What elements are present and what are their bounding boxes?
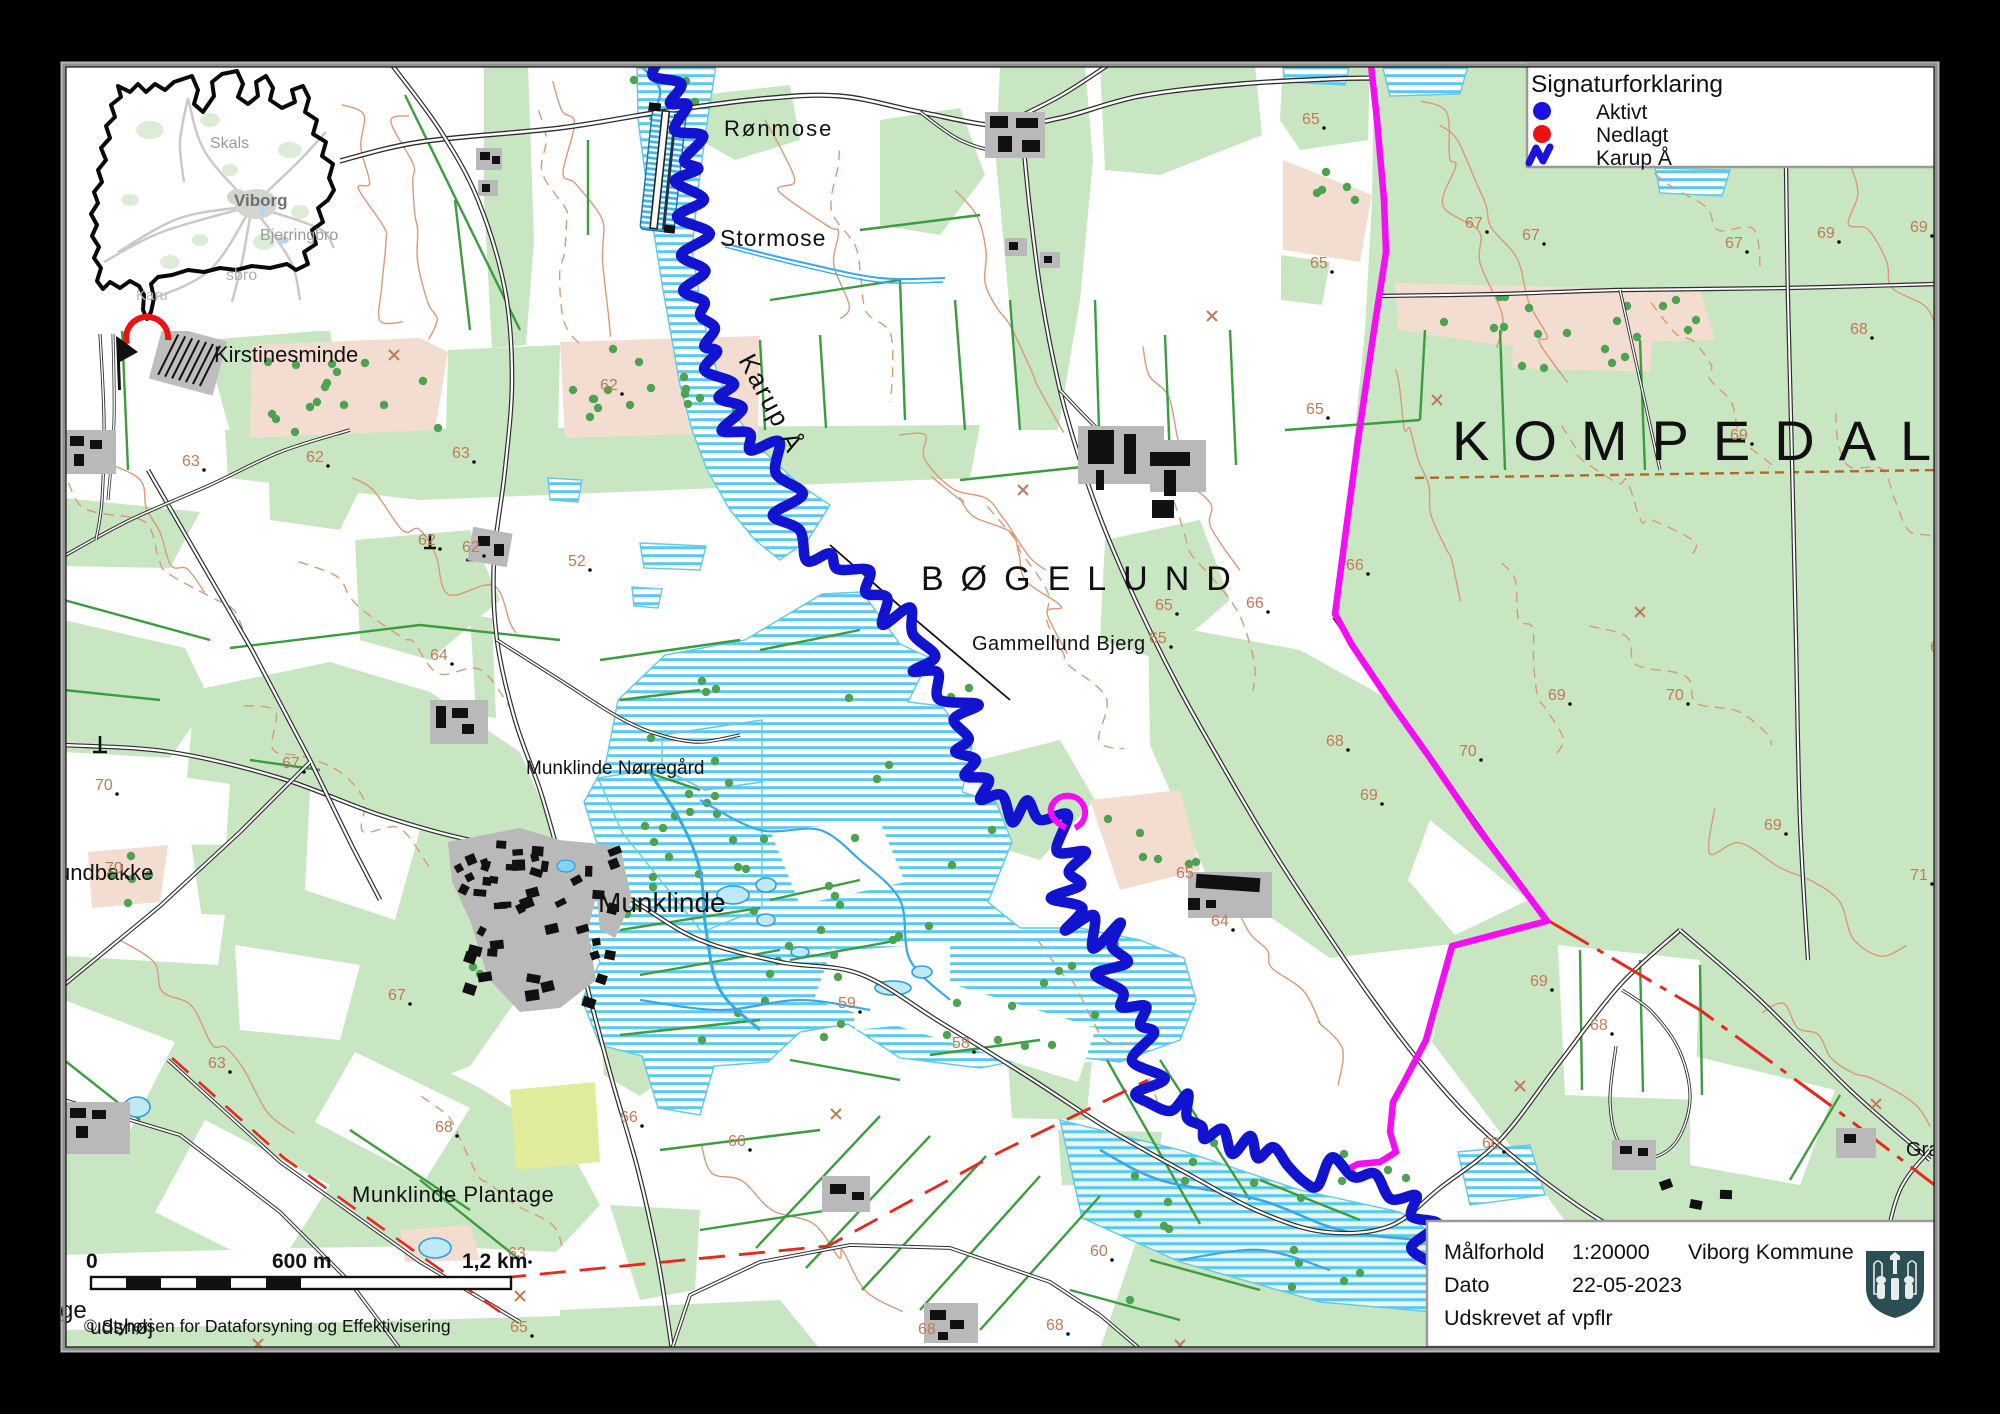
svg-text:Skals: Skals xyxy=(210,135,249,152)
svg-text:60: 60 xyxy=(1090,1243,1108,1260)
svg-text:68: 68 xyxy=(1046,1317,1064,1334)
svg-text:69: 69 xyxy=(1730,427,1748,444)
svg-text:1,2 km: 1,2 km xyxy=(462,1250,527,1273)
svg-text:vpflr: vpflr xyxy=(1572,1306,1613,1330)
svg-text:Stormose: Stormose xyxy=(720,225,826,251)
svg-text:Rønmose: Rønmose xyxy=(724,116,833,141)
svg-text:sbro: sbro xyxy=(226,267,257,284)
svg-text:66: 66 xyxy=(728,1133,746,1150)
svg-text:63: 63 xyxy=(208,1055,226,1072)
svg-text:Munklinde Plantage: Munklinde Plantage xyxy=(352,1182,554,1207)
svg-text:Kirstinesminde: Kirstinesminde xyxy=(214,342,358,367)
svg-text:68: 68 xyxy=(1850,321,1868,338)
svg-text:65: 65 xyxy=(1176,865,1194,882)
svg-text:63: 63 xyxy=(182,453,200,470)
svg-text:Karup Å: Karup Å xyxy=(1596,147,1672,170)
svg-text:66: 66 xyxy=(1346,557,1364,574)
svg-text:© Styrelsen for Dataforsyning: © Styrelsen for Dataforsyning og Effekti… xyxy=(84,1316,451,1336)
svg-text:70: 70 xyxy=(1666,687,1684,704)
svg-text:62: 62 xyxy=(600,377,618,394)
svg-text:62: 62 xyxy=(418,532,436,549)
svg-text:65: 65 xyxy=(1306,401,1324,418)
svg-text:68: 68 xyxy=(435,1119,453,1136)
svg-text:65: 65 xyxy=(1310,255,1328,272)
svg-text:69: 69 xyxy=(1548,687,1566,704)
svg-text:67: 67 xyxy=(282,755,300,772)
svg-text:59: 59 xyxy=(838,995,856,1012)
svg-text:600 m: 600 m xyxy=(272,1250,332,1273)
svg-text:66: 66 xyxy=(1246,595,1264,612)
svg-text:Målforhold: Målforhold xyxy=(1444,1240,1544,1264)
svg-text:Bjerringbro: Bjerringbro xyxy=(260,227,338,244)
svg-text:Munklinde: Munklinde xyxy=(598,887,726,918)
svg-text:69: 69 xyxy=(1910,219,1928,236)
svg-text:Munklinde Nørregård: Munklinde Nørregård xyxy=(526,758,704,779)
svg-text:Gammellund Bjerg: Gammellund Bjerg xyxy=(972,633,1146,655)
svg-text:52: 52 xyxy=(568,553,586,570)
svg-text:Viborg: Viborg xyxy=(234,191,288,210)
svg-text:69: 69 xyxy=(1360,787,1378,804)
svg-text:Signaturforklaring: Signaturforklaring xyxy=(1531,71,1723,98)
svg-text:67: 67 xyxy=(1725,235,1743,252)
svg-text:Viborg Kommune: Viborg Kommune xyxy=(1688,1240,1854,1264)
svg-text:Dato: Dato xyxy=(1444,1273,1489,1297)
svg-text:58: 58 xyxy=(952,1035,970,1052)
svg-text:70: 70 xyxy=(95,777,113,794)
svg-text:70: 70 xyxy=(105,860,123,877)
svg-text:67: 67 xyxy=(388,987,406,1004)
svg-text:68: 68 xyxy=(1590,1017,1608,1034)
svg-text:71: 71 xyxy=(1910,867,1928,884)
svg-text:68: 68 xyxy=(1326,733,1344,750)
svg-text:69: 69 xyxy=(1764,817,1782,834)
svg-text:64: 64 xyxy=(430,647,448,664)
svg-text:KOMPEDAL: KOMPEDAL xyxy=(1452,409,1955,472)
svg-text:68: 68 xyxy=(918,1321,936,1338)
svg-text:70: 70 xyxy=(1459,743,1477,760)
svg-text:65: 65 xyxy=(1149,630,1167,647)
svg-text:BØGELUND: BØGELUND xyxy=(921,560,1248,598)
svg-text:67: 67 xyxy=(1465,215,1483,232)
svg-text:69: 69 xyxy=(1817,225,1835,242)
svg-text:64: 64 xyxy=(1211,913,1229,930)
svg-text:0: 0 xyxy=(86,1250,98,1273)
svg-text:65: 65 xyxy=(1155,597,1173,614)
svg-text:22-05-2023: 22-05-2023 xyxy=(1572,1273,1682,1297)
svg-text:66: 66 xyxy=(620,1109,638,1126)
svg-text:62: 62 xyxy=(306,449,324,466)
svg-text:1:20000: 1:20000 xyxy=(1572,1240,1650,1264)
svg-text:65: 65 xyxy=(510,1319,528,1336)
svg-text:Nedlagt: Nedlagt xyxy=(1596,124,1669,147)
svg-text:69: 69 xyxy=(1530,973,1548,990)
svg-text:Udskrevet af: Udskrevet af xyxy=(1444,1306,1565,1330)
svg-text:63: 63 xyxy=(452,445,470,462)
svg-text:Karu: Karu xyxy=(136,287,168,304)
svg-text:65: 65 xyxy=(1302,111,1320,128)
svg-text:60: 60 xyxy=(1482,1135,1500,1152)
svg-text:67: 67 xyxy=(1522,227,1540,244)
svg-text:62: 62 xyxy=(462,539,480,556)
svg-text:Aktivt: Aktivt xyxy=(1596,101,1648,124)
